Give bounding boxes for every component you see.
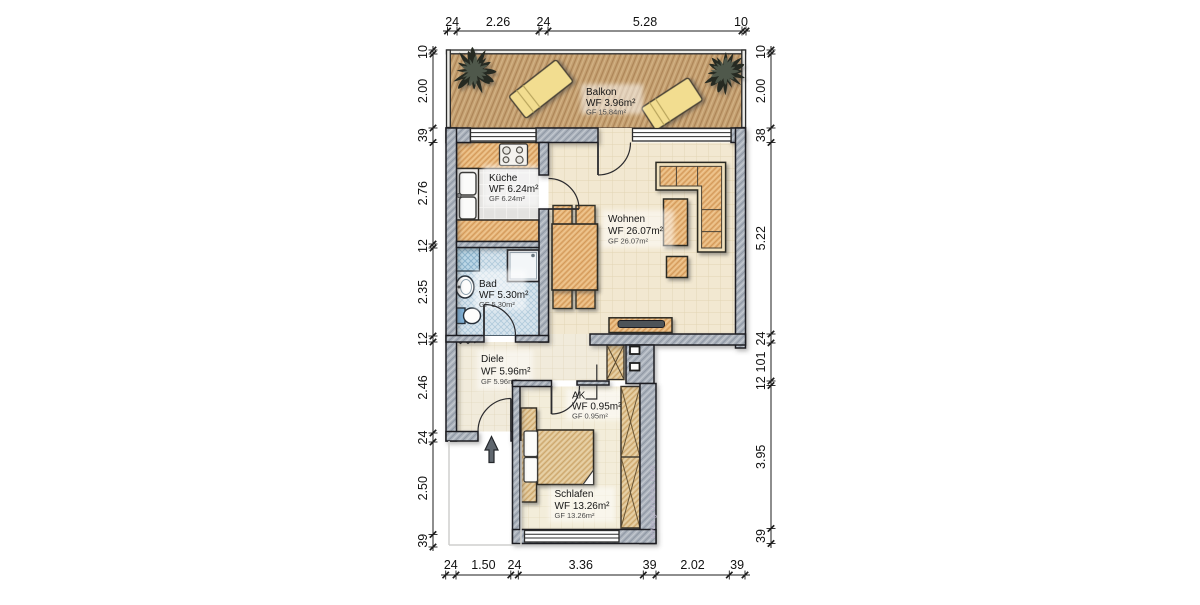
svg-text:2.02: 2.02	[680, 558, 704, 572]
svg-text:39: 39	[730, 558, 744, 572]
svg-text:Balkon: Balkon	[586, 87, 617, 98]
svg-text:GF 6.24m²: GF 6.24m²	[489, 194, 525, 203]
svg-text:www.grundriss.com: www.grundriss.com	[647, 465, 657, 540]
svg-text:3.36: 3.36	[569, 558, 593, 572]
svg-text:12: 12	[416, 239, 430, 253]
svg-text:39: 39	[754, 529, 768, 543]
svg-text:5.28: 5.28	[633, 15, 657, 29]
svg-text:WF 5.96m²: WF 5.96m²	[481, 367, 531, 378]
svg-text:WF 26.07m²: WF 26.07m²	[608, 226, 664, 237]
svg-text:Küche: Küche	[489, 173, 518, 184]
svg-text:12: 12	[754, 376, 768, 390]
svg-text:24: 24	[537, 15, 551, 29]
svg-text:24: 24	[416, 431, 430, 445]
svg-text:24: 24	[754, 332, 768, 346]
svg-text:GF 15.84m²: GF 15.84m²	[586, 108, 627, 117]
svg-text:10: 10	[416, 45, 430, 59]
svg-text:GF 0.95m²: GF 0.95m²	[572, 412, 608, 421]
svg-text:12: 12	[416, 332, 430, 346]
svg-text:2.26: 2.26	[486, 15, 510, 29]
svg-text:10: 10	[734, 15, 748, 29]
svg-text:10: 10	[754, 45, 768, 59]
svg-text:GF 26.07m²: GF 26.07m²	[608, 237, 649, 246]
svg-text:2.00: 2.00	[754, 79, 768, 103]
svg-text:24: 24	[445, 15, 459, 29]
svg-text:38: 38	[754, 128, 768, 142]
svg-text:39: 39	[416, 128, 430, 142]
svg-text:Bad: Bad	[479, 279, 497, 290]
svg-text:Wohnen: Wohnen	[608, 214, 645, 225]
svg-text:GF 13.26m²: GF 13.26m²	[555, 511, 596, 520]
svg-text:39: 39	[416, 534, 430, 548]
svg-text:24: 24	[444, 558, 458, 572]
svg-text:Schlafen: Schlafen	[555, 489, 594, 500]
svg-text:2.00: 2.00	[416, 79, 430, 103]
svg-text:5.22: 5.22	[754, 226, 768, 250]
svg-text:39: 39	[643, 558, 657, 572]
svg-text:24: 24	[508, 558, 522, 572]
svg-text:3.95: 3.95	[754, 445, 768, 469]
svg-text:Diele: Diele	[481, 354, 504, 365]
svg-text:1.50: 1.50	[471, 558, 495, 572]
svg-text:2.46: 2.46	[416, 375, 430, 399]
svg-text:2.76: 2.76	[416, 181, 430, 205]
svg-text:101: 101	[754, 352, 768, 373]
svg-text:2.35: 2.35	[416, 280, 430, 304]
svg-text:2.50: 2.50	[416, 476, 430, 500]
